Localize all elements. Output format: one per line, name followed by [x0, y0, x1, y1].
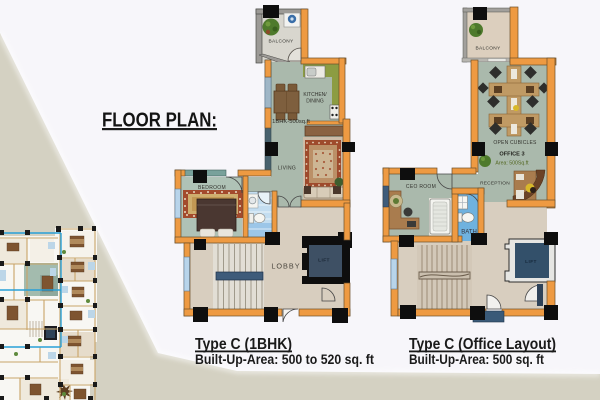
- svg-text:LOBBY: LOBBY: [271, 262, 300, 271]
- svg-text:BALCONY: BALCONY: [268, 39, 294, 45]
- svg-text:1BHK-500sq.ft: 1BHK-500sq.ft: [272, 119, 310, 125]
- svg-text:Built-Up-Area: 500 sq. ft: Built-Up-Area: 500 sq. ft: [409, 352, 544, 367]
- svg-text:DINING: DINING: [306, 99, 324, 105]
- svg-text:BALCONY: BALCONY: [475, 46, 501, 52]
- svg-text:Built-Up-Area: 500 to 520 sq.: Built-Up-Area: 500 to 520 sq. ft: [195, 352, 374, 367]
- svg-text:KITCHEN/: KITCHEN/: [303, 92, 327, 98]
- svg-text:BEDROOM: BEDROOM: [198, 185, 226, 191]
- svg-text:BATH: BATH: [461, 230, 477, 236]
- svg-text:CEO ROOM: CEO ROOM: [406, 184, 436, 190]
- svg-text:OPEN CUBICLES: OPEN CUBICLES: [493, 140, 537, 146]
- svg-text:LIFT: LIFT: [318, 258, 330, 264]
- svg-text:RECEPTION: RECEPTION: [480, 181, 510, 187]
- svg-text:LIVING: LIVING: [278, 166, 296, 172]
- svg-text:Area: 500Sq.ft: Area: 500Sq.ft: [495, 161, 529, 167]
- svg-text:Type C (1BHK): Type C (1BHK): [195, 336, 292, 353]
- svg-text:OFFICE 3: OFFICE 3: [499, 152, 524, 158]
- svg-text:Type C (Office Layout): Type C (Office Layout): [409, 336, 556, 353]
- svg-text:LIFT: LIFT: [525, 259, 537, 265]
